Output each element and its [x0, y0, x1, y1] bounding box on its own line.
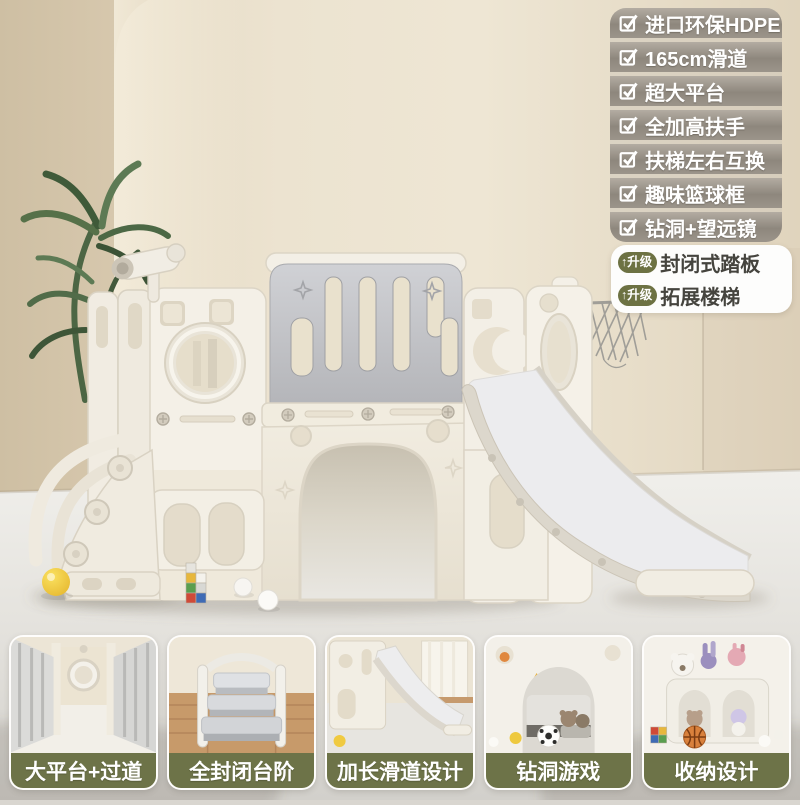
thumbnail-label: 钻洞游戏: [486, 753, 631, 788]
upgrade-item: ↑升级 封闭式踏板: [618, 248, 792, 277]
telescope-eyepiece: [167, 244, 185, 262]
checkbox-icon: [619, 115, 639, 135]
thumb-image-corridor: [11, 637, 156, 753]
feature-item: 全加高扶手: [610, 110, 782, 140]
feature-item: 165cm滑道: [610, 42, 782, 72]
upgrade-badge: ↑升级: [618, 252, 657, 273]
thumbnail-card-2: 全封闭台阶: [167, 635, 316, 790]
checkbox-icon: [619, 13, 639, 33]
thumb-image-steps: [169, 637, 314, 753]
checkbox-icon: [619, 81, 639, 101]
thumbnail-card-1: 大平台+过道: [9, 635, 158, 790]
thumbnail-card-4: 钻洞游戏: [484, 635, 633, 790]
checkbox-icon: [619, 47, 639, 67]
feature-label: 扶梯左右互换: [645, 145, 765, 174]
checkbox-icon: [619, 149, 639, 169]
upgrade-card: ↑升级 封闭式踏板 ↑升级 拓展楼梯: [611, 245, 792, 313]
checkbox-icon: [619, 183, 639, 203]
yellow-ball: [42, 568, 70, 596]
thumbnail-label: 收纳设计: [644, 753, 789, 788]
feature-item: 钻洞+望远镜: [610, 212, 782, 242]
feature-badge-list: 进口环保HDPE 165cm滑道 超大平台 全加高扶手 扶梯左右互换 趣味篮球框…: [610, 8, 782, 242]
thumbnail-strip: 大平台+过道 全封闭台阶: [0, 635, 800, 790]
upgrade-label: 拓展楼梯: [660, 281, 740, 310]
arch-hole-right: [427, 420, 449, 442]
thumb-image-slide: [327, 637, 472, 753]
arch-opening: [300, 444, 436, 600]
porthole-window: [165, 323, 245, 403]
thumbnail-label: 加长滑道设计: [327, 753, 472, 788]
thumbnail-card-3: 加长滑道设计: [325, 635, 474, 790]
feature-item: 超大平台: [610, 76, 782, 106]
white-ball-2: [258, 590, 278, 610]
door-panel: [150, 490, 264, 570]
thumbnail-card-5: 收纳设计: [642, 635, 791, 790]
feature-label: 进口环保HDPE: [645, 9, 781, 38]
feature-label: 超大平台: [645, 77, 725, 106]
gray-fence-panel: [262, 253, 470, 427]
feature-label: 趣味篮球框: [645, 179, 745, 208]
slide-foot: [636, 570, 754, 596]
thumbnail-label: 全封闭台阶: [169, 753, 314, 788]
thumb-image-tunnel: [486, 637, 631, 753]
arch-doorway-section: [262, 420, 470, 600]
feature-item: 扶梯左右互换: [610, 144, 782, 174]
feature-item: 趣味篮球框: [610, 178, 782, 208]
upgrade-label: 封闭式踏板: [660, 248, 760, 277]
feature-label: 钻洞+望远镜: [645, 213, 757, 242]
checkbox-icon: [619, 217, 639, 237]
feature-label: 165cm滑道: [645, 43, 747, 72]
white-ball: [234, 578, 252, 596]
thumbnail-label: 大平台+过道: [11, 753, 156, 788]
arch-hole-left: [291, 426, 311, 446]
feature-label: 全加高扶手: [645, 111, 745, 140]
upgrade-item: ↑升级 拓展楼梯: [618, 281, 792, 310]
feature-item: 进口环保HDPE: [610, 8, 782, 38]
thumb-image-storage: [644, 637, 789, 753]
upgrade-badge: ↑升级: [618, 285, 657, 306]
